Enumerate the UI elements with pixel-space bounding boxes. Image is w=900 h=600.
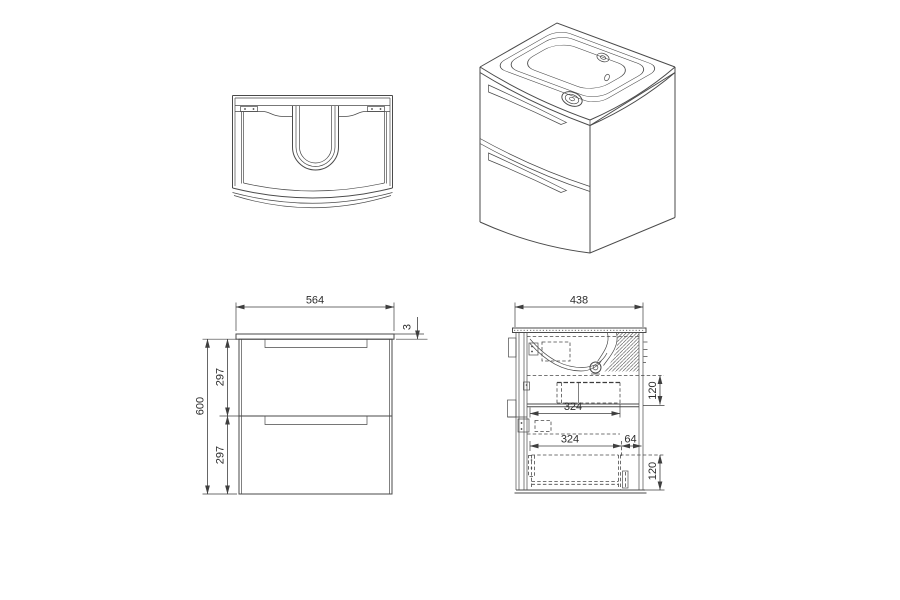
dim-label-600: 600 [195, 397, 207, 415]
plan-bracket-right [368, 107, 385, 112]
front-carcass [239, 339, 392, 494]
siphon-icon [590, 362, 601, 374]
dim-label-297-upper: 297 [215, 368, 227, 386]
overflow-icon [604, 73, 611, 81]
dim-side-depth: 438 [515, 295, 643, 328]
dim-front-width: 564 [236, 295, 394, 332]
dim-back-clearance: 64 [622, 434, 642, 447]
front-view: 564 3 600 297 297 [195, 295, 428, 495]
vanity-drawing-svg: 564 3 600 297 297 [0, 0, 900, 600]
dim-upper-drawer-height-side: 120 [643, 376, 665, 406]
front-countertop [236, 334, 394, 339]
front-upper-handle-recess [265, 339, 367, 347]
drawer-runner-brackets [518, 419, 620, 434]
wall-bracket-mid [508, 400, 517, 417]
drawer-divider [480, 139, 590, 187]
dim-label-438: 438 [570, 295, 588, 307]
dim-label-297-lower: 297 [215, 446, 227, 464]
dim-label-3: 3 [402, 324, 414, 330]
front-lower-handle-recess [265, 416, 367, 425]
wall-bracket-upper [509, 338, 517, 357]
dim-label-564: 564 [306, 295, 324, 307]
dim-label-120-upper: 120 [647, 381, 659, 399]
dim-front-height: 600 [195, 339, 238, 494]
isometric-view [480, 23, 675, 253]
plan-siphon-cutout [293, 106, 339, 170]
dim-label-64: 64 [624, 434, 636, 446]
dim-label-324-upper: 324 [564, 401, 582, 413]
upper-drawer-handle [489, 85, 567, 125]
dim-upper-drawer-depth: 324 [530, 401, 620, 418]
dim-label-120-lower: 120 [647, 462, 659, 480]
plan-bracket-left [241, 107, 258, 112]
basin-section [527, 333, 648, 374]
dim-lower-drawer-height-side: 120 [620, 455, 665, 490]
dim-label-324-lower: 324 [561, 434, 579, 446]
dim-lower-drawer-depth: 324 [530, 434, 622, 457]
upper-drawer-box [524, 382, 621, 403]
plan-front-curve [233, 188, 393, 198]
side-countertop [513, 328, 647, 333]
dim-lower-drawer-height: 297 [215, 416, 228, 494]
side-section-view: 438 [508, 295, 665, 494]
technical-drawing-canvas: 564 3 600 297 297 [0, 0, 900, 600]
basin-cut-hatch [604, 333, 639, 372]
lower-drawer-handle [489, 153, 567, 193]
lower-drawer-box [529, 455, 629, 490]
dim-counter-thickness: 3 [394, 317, 428, 339]
plan-view [233, 96, 393, 208]
